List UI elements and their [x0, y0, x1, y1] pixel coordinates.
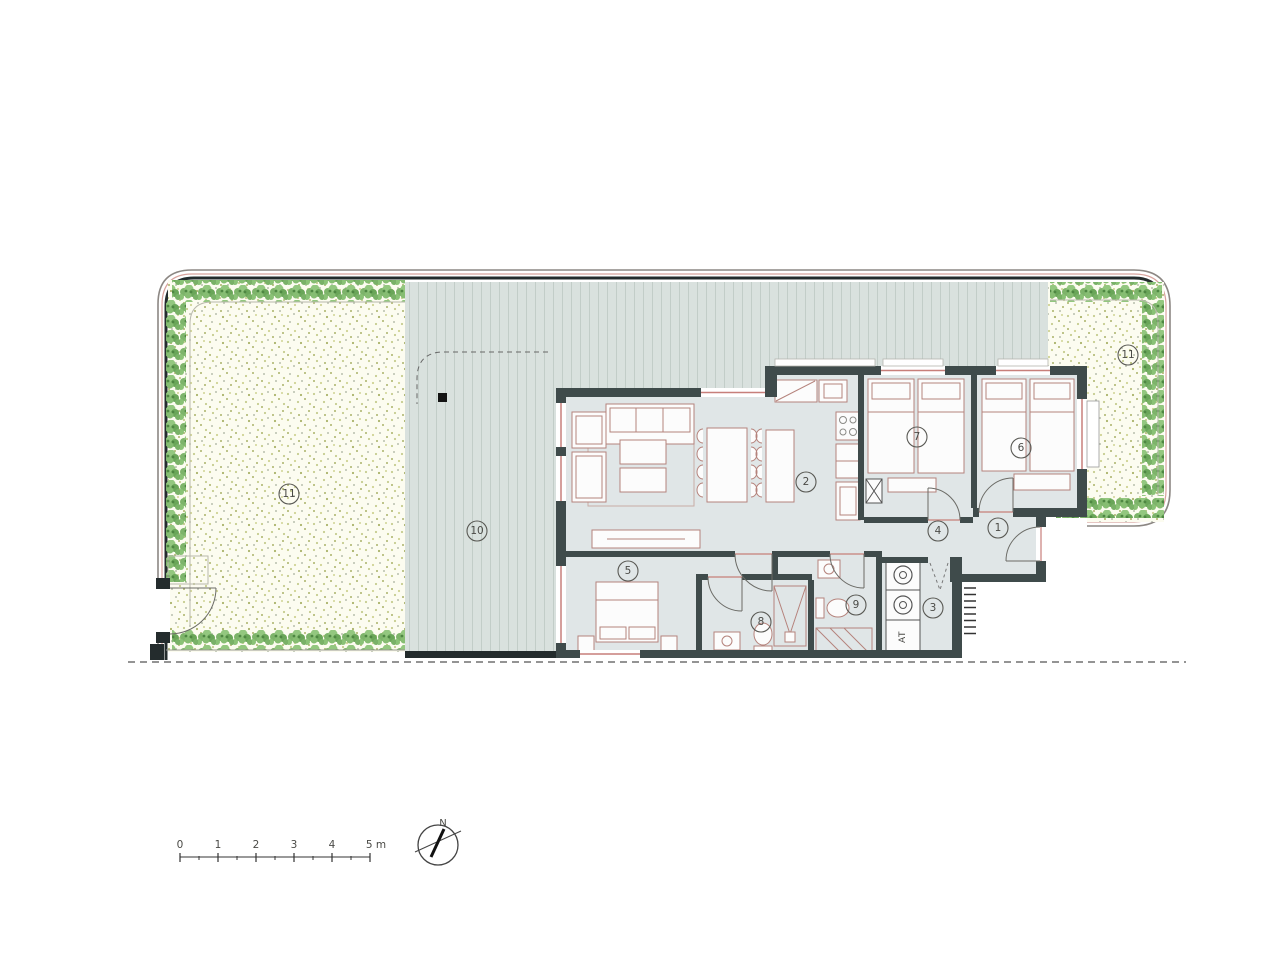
- svg-text:6: 6: [1018, 442, 1025, 454]
- water-heater-label: AT: [898, 631, 908, 643]
- dining-table: [707, 428, 747, 502]
- svg-text:1: 1: [995, 522, 1002, 534]
- toilet-tank: [816, 598, 824, 618]
- scale-bar: 0 1 2 3 4 5 m: [177, 839, 386, 862]
- floor-plan-drawing: 11 10 11: [0, 0, 1280, 960]
- garden-left-hedge-top: [172, 280, 405, 302]
- compass-needle: [431, 829, 444, 857]
- kitchen-appliance-inner: [824, 384, 842, 398]
- garden-right-hedge-side: [1142, 300, 1164, 496]
- garden-left-ground: [168, 280, 405, 652]
- sink: [818, 560, 840, 578]
- bed-pillow: [1034, 383, 1070, 399]
- gate-post-bottom: [156, 632, 170, 643]
- floor-plan-page: 11 10 11: [0, 0, 1280, 960]
- scale-label-0: 0: [177, 839, 184, 851]
- bed-pillow: [600, 627, 626, 639]
- shower-drain: [785, 632, 795, 642]
- bed-pillow: [629, 627, 655, 639]
- north-compass: N: [415, 818, 461, 865]
- duct-shaft: [866, 479, 882, 503]
- boundary-end-post: [150, 644, 164, 660]
- garden-left-hedge-side: [166, 300, 186, 582]
- exterior-hatch-ticks: [964, 588, 976, 634]
- garden-left-number: 11: [282, 488, 295, 500]
- garden-right-hedge-top: [1050, 282, 1162, 302]
- window-sill: [998, 359, 1048, 366]
- deck-edge-wall: [405, 651, 560, 658]
- sink: [714, 632, 740, 650]
- coffee-table-1: [620, 440, 666, 464]
- north-label: N: [439, 818, 446, 829]
- armchair-seat: [576, 416, 602, 444]
- bench: [1014, 474, 1070, 490]
- garden-left-hedge-bottom: [172, 630, 405, 650]
- garden-right-number: 11: [1121, 349, 1134, 361]
- nightstand: [578, 636, 594, 652]
- scale-label-2: 2: [253, 839, 260, 851]
- svg-text:2: 2: [803, 476, 810, 488]
- garden-left: 11: [150, 280, 405, 660]
- scale-label-3: 3: [291, 839, 298, 851]
- scale-label-5m: 5 m: [366, 839, 386, 851]
- svg-text:5: 5: [625, 565, 632, 577]
- svg-text:4: 4: [935, 525, 942, 537]
- gate-post-top: [156, 578, 170, 589]
- bench: [888, 478, 936, 492]
- chaise-pad: [576, 456, 602, 498]
- window-sill: [775, 359, 875, 366]
- window-sill: [883, 359, 943, 366]
- svg-text:3: 3: [930, 602, 937, 614]
- kitchen-counter-2-inner: [840, 487, 856, 515]
- house: AT: [556, 359, 1099, 658]
- nightstand: [661, 636, 677, 652]
- bed-pillow: [872, 383, 910, 399]
- gate-break: [152, 588, 170, 634]
- column-marker: [438, 393, 447, 402]
- bed-pillow: [922, 383, 960, 399]
- svg-text:9: 9: [853, 599, 860, 611]
- stove: [836, 412, 860, 440]
- coffee-table-2: [620, 468, 666, 492]
- deck-number: 10: [470, 525, 483, 537]
- window-sill: [1087, 401, 1099, 467]
- bed-pillow: [986, 383, 1022, 399]
- toilet: [827, 599, 849, 617]
- scale-label-1: 1: [215, 839, 222, 851]
- scale-label-4: 4: [329, 839, 336, 851]
- island-table: [766, 430, 794, 502]
- sofa-cushions: [610, 408, 690, 432]
- svg-text:8: 8: [758, 616, 765, 628]
- svg-text:7: 7: [914, 431, 921, 443]
